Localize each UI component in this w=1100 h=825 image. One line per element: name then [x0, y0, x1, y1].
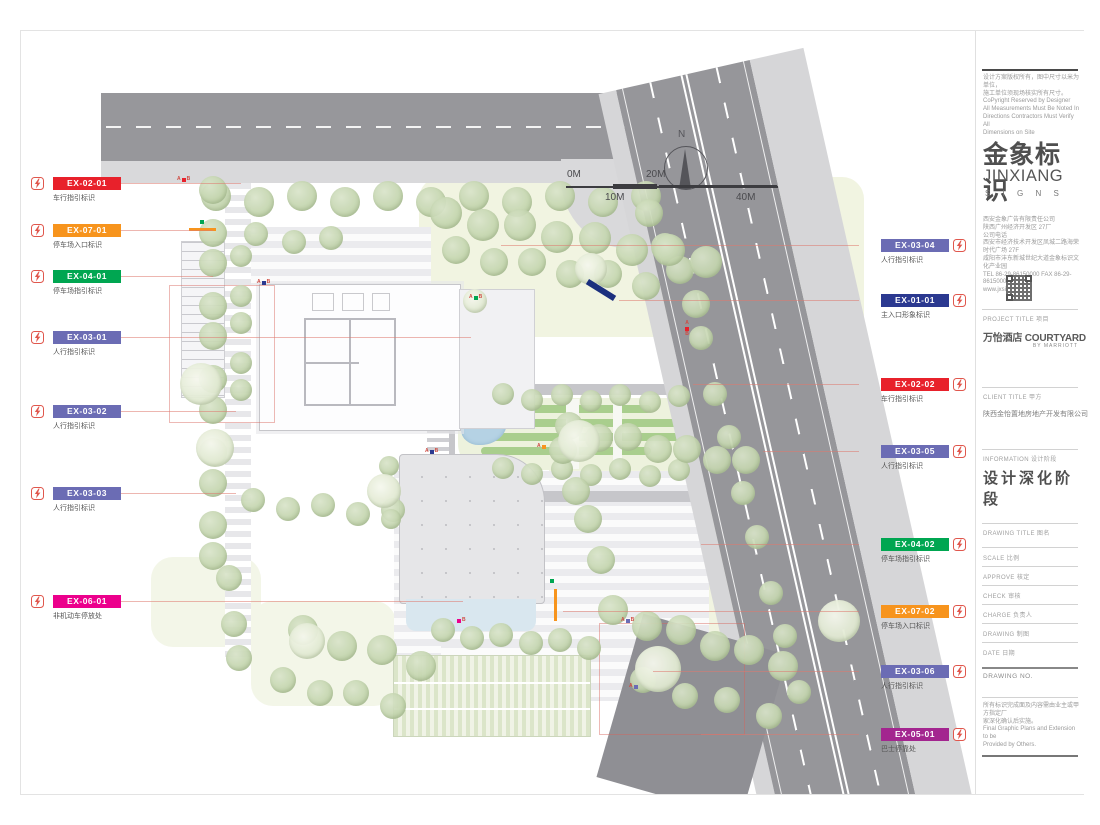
- tree: [703, 382, 727, 406]
- sign-flag-icon: [953, 538, 966, 551]
- tree: [230, 312, 252, 334]
- tree: [616, 234, 648, 266]
- client-name: 陕西金怡置地房地产开发有限公司: [983, 409, 1088, 419]
- panel-rule: [982, 755, 1078, 757]
- drawing-no-label: DRAWING NO.: [983, 673, 1033, 680]
- plan-location-marker: A: [537, 444, 546, 449]
- title-block-row-label: CHECK 审核: [983, 591, 1021, 600]
- sign-flag-icon: [31, 487, 44, 500]
- parking-entrance-sign-marker: [554, 589, 557, 621]
- qr-code: [1006, 275, 1032, 301]
- scale-40m: 40M: [736, 192, 755, 203]
- plan-location-marker: AB: [425, 449, 438, 454]
- callout-description: 人行指引标识: [53, 503, 95, 513]
- callout-description: 非机动车停放处: [53, 611, 102, 621]
- title-block: 设计方案版权所有，图中尺寸以米为单位，施工单位须现场核实所有尺寸。CoPyrig…: [975, 31, 1084, 794]
- tree: [230, 379, 252, 401]
- leader-line: [103, 337, 471, 338]
- tree: [580, 390, 602, 412]
- tree: [672, 683, 698, 709]
- scale-bar-segment: [659, 185, 777, 188]
- plan-location-marker: [550, 579, 554, 583]
- tree: [579, 222, 611, 254]
- scale-0m: 0M: [567, 169, 581, 180]
- site-plan: ABABABABABABABA N 0M 20M 10M 40M: [21, 31, 973, 794]
- tree: [558, 420, 600, 462]
- plan-location-marker: A: [629, 684, 638, 689]
- north-label: N: [678, 129, 685, 140]
- callout-code-box[interactable]: EX-03-03: [53, 487, 121, 500]
- plan-location-marker: AB: [469, 295, 482, 300]
- callout-description: 人行指引标识: [53, 347, 95, 357]
- copyright-note: 设计方案版权所有，图中尺寸以米为单位，施工单位须现场核实所有尺寸。CoPyrig…: [983, 75, 1081, 137]
- callout-code-box[interactable]: EX-03-02: [53, 405, 121, 418]
- tree: [731, 481, 755, 505]
- leader-line: [763, 451, 859, 452]
- callout-code-box[interactable]: EX-07-01: [53, 224, 121, 237]
- tree: [653, 234, 685, 266]
- sign-flag-icon: [31, 331, 44, 344]
- tree: [380, 693, 406, 719]
- tree: [732, 446, 760, 474]
- leader-line: [103, 411, 236, 412]
- leader-line: [103, 601, 463, 602]
- tree: [562, 477, 590, 505]
- sign-flag-icon: [953, 665, 966, 678]
- brand-logo-en: JINXIANG: [983, 167, 1063, 186]
- tree: [519, 631, 543, 655]
- tree: [756, 703, 782, 729]
- callout-description: 停车场入口标识: [881, 621, 930, 631]
- tree: [635, 199, 663, 227]
- tree: [330, 187, 360, 217]
- brand-logo-signs: S I G N S: [985, 189, 1064, 198]
- callout-code-box[interactable]: EX-04-01: [53, 270, 121, 283]
- callout-description: 巴士停靠处: [881, 744, 916, 754]
- tree: [682, 290, 710, 318]
- callout-description: 主入口形象标识: [881, 310, 930, 320]
- tree: [367, 474, 401, 508]
- panel-rule: [982, 667, 1078, 669]
- tree: [768, 651, 798, 681]
- title-block-row-label: APPROVE 核定: [983, 572, 1030, 581]
- company-info: 西安金象广告有限责任公司陕西广州经济开发区 27厂公司电话西安市经济技术开发区凤…: [983, 217, 1081, 295]
- tree: [442, 236, 470, 264]
- sign-flag-icon: [31, 405, 44, 418]
- tree: [196, 429, 234, 467]
- callout-description: 车行指引标识: [881, 394, 923, 404]
- tree: [367, 635, 397, 665]
- information-label: INFORMATION 设计阶段: [983, 454, 1057, 463]
- tree: [673, 435, 701, 463]
- project-name: 万怡酒店 COURTYARD: [983, 329, 1086, 344]
- tree: [381, 509, 401, 529]
- callout-code-box[interactable]: EX-02-01: [53, 177, 121, 190]
- tree: [632, 272, 660, 300]
- final-note: 所有标识完成面及内容需由业主或甲方指定厂家深化确认后实施。Final Graph…: [983, 703, 1081, 750]
- tree: [270, 667, 296, 693]
- callout-code-box[interactable]: EX-02-02: [881, 378, 949, 391]
- tree: [230, 245, 252, 267]
- leader-line: [501, 245, 859, 246]
- tree: [241, 488, 265, 512]
- tree: [221, 611, 247, 637]
- tree: [700, 631, 730, 661]
- sign-flag-icon: [953, 605, 966, 618]
- plan-location-marker: AB: [257, 280, 270, 285]
- callout-code-box[interactable]: EX-06-01: [53, 595, 121, 608]
- sign-flag-icon: [31, 177, 44, 190]
- tree: [282, 230, 306, 254]
- sign-flag-icon: [953, 378, 966, 391]
- callout-code-box[interactable]: EX-01-01: [881, 294, 949, 307]
- callout-description: 停车场入口标识: [53, 240, 102, 250]
- tree: [666, 615, 696, 645]
- sign-flag-icon: [31, 595, 44, 608]
- tree: [668, 385, 690, 407]
- tree: [459, 181, 489, 211]
- plan-location-marker: B: [457, 618, 466, 623]
- leader-line: [103, 183, 241, 184]
- tree: [406, 651, 436, 681]
- tree: [230, 285, 252, 307]
- tree: [199, 249, 227, 277]
- tree: [587, 546, 615, 574]
- tree: [551, 384, 573, 406]
- tree: [690, 246, 722, 278]
- callout-description: 人行指引标识: [881, 461, 923, 471]
- sign-flag-icon: [953, 294, 966, 307]
- callout-description: 人行指引标识: [53, 421, 95, 431]
- tree: [632, 611, 662, 641]
- tree: [226, 645, 252, 671]
- scale-10m: 10M: [605, 192, 624, 203]
- tree: [480, 248, 508, 276]
- tree: [492, 457, 514, 479]
- tree: [518, 248, 546, 276]
- tree: [180, 363, 222, 405]
- design-stage: 设计深化阶段: [983, 467, 1084, 509]
- sign-flag-icon: [31, 224, 44, 237]
- tree: [244, 222, 268, 246]
- tree: [787, 680, 811, 704]
- tree: [319, 226, 343, 250]
- tree: [230, 352, 252, 374]
- tree: [703, 446, 731, 474]
- leader-line: [701, 734, 859, 735]
- callout-description: 停车场指引标识: [53, 286, 102, 296]
- tree: [244, 187, 274, 217]
- tree: [307, 680, 333, 706]
- plan-location-marker: AB: [685, 321, 689, 337]
- tree: [430, 197, 462, 229]
- tree: [548, 628, 572, 652]
- callout-description: 停车场指引标识: [881, 554, 930, 564]
- tree: [311, 493, 335, 517]
- callout-code-box[interactable]: EX-05-01: [881, 728, 949, 741]
- tree: [745, 525, 769, 549]
- plan-location-marker: AB: [177, 177, 190, 182]
- project-sub: BY MARRIOTT: [1033, 343, 1078, 349]
- hotel-building-footprint: [259, 284, 461, 431]
- tree: [216, 565, 242, 591]
- title-block-row-label: SCALE 比例: [983, 553, 1020, 562]
- north-needle-icon: [679, 149, 691, 189]
- leader-line: [563, 611, 859, 612]
- tree: [577, 636, 601, 660]
- callout-code-box[interactable]: EX-07-02: [881, 605, 949, 618]
- tree: [431, 618, 455, 642]
- scale-20m: 20M: [646, 169, 665, 180]
- tree: [199, 511, 227, 539]
- callout-code-box[interactable]: EX-04-02: [881, 538, 949, 551]
- title-block-row-label: DATE 日期: [983, 648, 1015, 657]
- sign-flag-icon: [953, 728, 966, 741]
- tree: [635, 646, 681, 692]
- drawing-sheet: ABABABABABABABA N 0M 20M 10M 40M EX-02-0…: [20, 30, 1084, 795]
- callout-description: 人行指引标识: [881, 681, 923, 691]
- tree: [714, 687, 740, 713]
- drawing-title-label: DRAWING TITLE 图名: [983, 528, 1050, 537]
- tree: [289, 623, 325, 659]
- lane-dash: [106, 126, 666, 128]
- title-block-row-label: CHARGE 负责人: [983, 610, 1032, 619]
- callout-code-box[interactable]: EX-03-01: [53, 331, 121, 344]
- leader-line: [653, 671, 859, 672]
- tree: [639, 391, 661, 413]
- tree: [373, 181, 403, 211]
- callout-code-box[interactable]: EX-03-06: [881, 665, 949, 678]
- project-title-label: PROJECT TITLE 项目: [983, 314, 1049, 323]
- tree: [199, 292, 227, 320]
- sign-flag-icon: [953, 239, 966, 252]
- callout-description: 人行指引标识: [881, 255, 923, 265]
- tree: [639, 465, 661, 487]
- tree: [346, 502, 370, 526]
- leader-line: [693, 384, 859, 385]
- leader-line: [701, 544, 859, 545]
- leader-line: [103, 493, 236, 494]
- tree: [689, 326, 713, 350]
- client-title-label: CLIENT TITLE 甲方: [983, 392, 1042, 401]
- tree: [644, 435, 672, 463]
- scale-bar-segment: [613, 184, 657, 189]
- sign-flag-icon: [953, 445, 966, 458]
- plan-location-marker: [200, 220, 204, 224]
- tree: [287, 181, 317, 211]
- tree: [492, 383, 514, 405]
- tree: [276, 497, 300, 521]
- tree: [463, 289, 487, 313]
- callout-code-box[interactable]: EX-03-04: [881, 239, 949, 252]
- panel-rule: [982, 69, 1078, 71]
- callout-description: 车行指引标识: [53, 193, 95, 203]
- sign-flag-icon: [31, 270, 44, 283]
- plan-location-marker: AB: [621, 618, 634, 623]
- tree: [759, 581, 783, 605]
- callout-code-box[interactable]: EX-03-05: [881, 445, 949, 458]
- tree: [199, 176, 227, 204]
- tree: [379, 456, 399, 476]
- tree: [818, 600, 860, 642]
- tree: [734, 635, 764, 665]
- title-block-row-label: DRAWING 制图: [983, 629, 1029, 638]
- leader-line: [619, 300, 859, 301]
